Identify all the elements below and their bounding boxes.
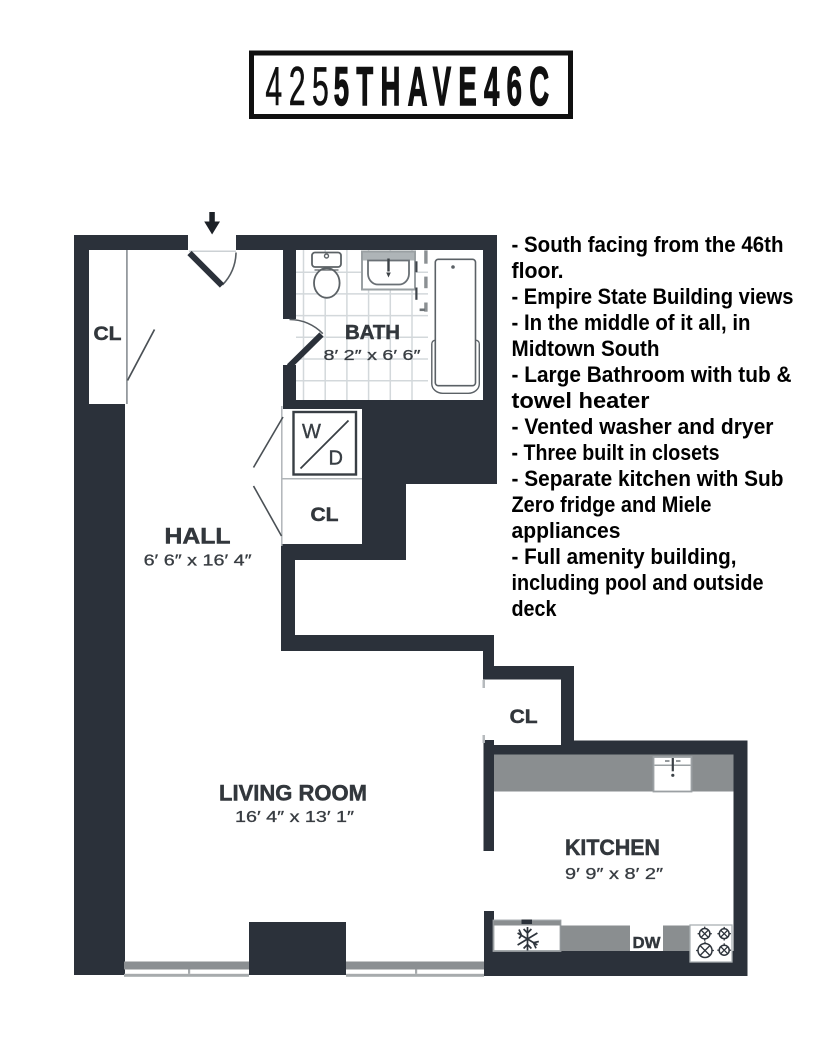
svg-text:D: D [329,448,343,470]
svg-text:HALL: HALL [165,524,231,549]
svg-text:CL: CL [311,505,339,526]
svg-text:Zero fridge and Miele: Zero fridge and Miele [512,492,712,517]
svg-text:W: W [302,421,321,443]
svg-text:- In the middle of it all, in: - In the middle of it all, in [512,310,751,335]
svg-text:5THAVE46C: 5THAVE46C [334,57,557,118]
svg-text:- Three built in closets: - Three built in closets [512,440,720,465]
svg-text:- Separate kitchen with Sub: - Separate kitchen with Sub [512,466,784,491]
svg-text:- Large Bathroom with tub &: - Large Bathroom with tub & [512,362,792,387]
svg-text:LIVING ROOM: LIVING ROOM [219,781,367,806]
svg-text:- South facing from the 46th: - South facing from the 46th [512,232,784,257]
svg-text:deck: deck [512,596,558,621]
svg-text:425: 425 [265,56,335,117]
svg-text:CL: CL [510,707,538,728]
svg-text:6′ 6″ x 16′ 4″: 6′ 6″ x 16′ 4″ [144,553,252,570]
svg-text:9′ 9″ x 8′ 2″: 9′ 9″ x 8′ 2″ [565,866,663,883]
svg-text:16′ 4″ x 13′ 1″: 16′ 4″ x 13′ 1″ [235,809,354,826]
svg-text:floor.: floor. [512,258,564,283]
svg-text:DW: DW [633,935,662,952]
svg-text:KITCHEN: KITCHEN [565,835,660,860]
svg-text:Midtown South: Midtown South [512,336,660,361]
svg-text:appliances: appliances [512,518,621,543]
svg-text:including pool and outside: including pool and outside [512,570,764,595]
svg-text:towel heater: towel heater [512,388,650,413]
svg-text:CL: CL [94,324,122,345]
svg-text:8′ 2″ x 6′ 6″: 8′ 2″ x 6′ 6″ [324,347,422,364]
svg-text:BATH: BATH [345,322,400,344]
svg-text:- Full amenity building,: - Full amenity building, [512,544,737,569]
svg-text:- Vented washer and dryer: - Vented washer and dryer [512,414,774,439]
svg-text:- Empire State Building views: - Empire State Building views [512,284,794,309]
